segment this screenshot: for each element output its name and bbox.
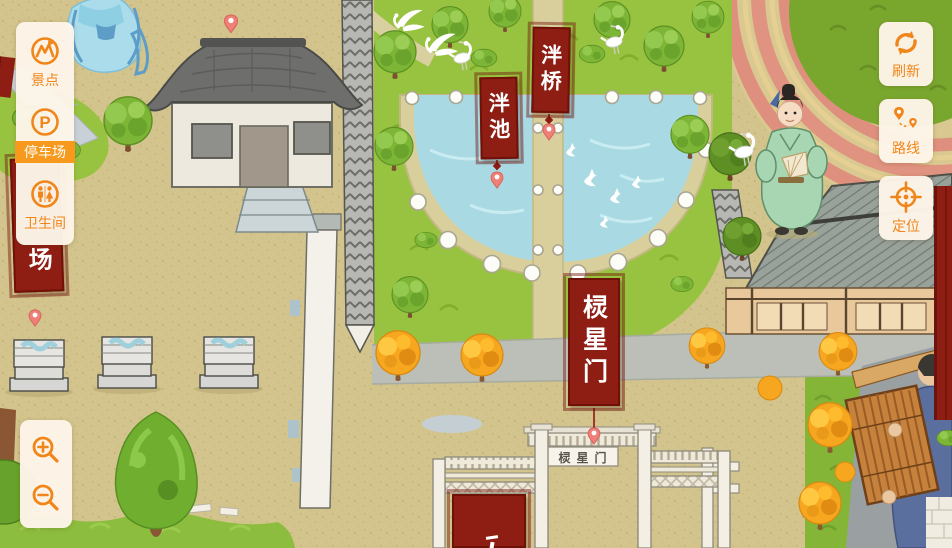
- banner-pan-bridge[interactable]: 泮桥: [531, 27, 570, 114]
- parking-icon: P: [29, 106, 61, 138]
- banner-bottom-partial[interactable]: [452, 494, 526, 548]
- scenic-spots-icon: [29, 35, 61, 67]
- scenic-spots-button[interactable]: 景点: [16, 35, 74, 90]
- restroom-button[interactable]: 卫生间: [16, 178, 74, 233]
- banner-pan-pond[interactable]: 泮池: [479, 77, 518, 160]
- gate-plaque-text: 棂星门: [546, 447, 619, 467]
- banner-partial-glyph: [486, 535, 498, 540]
- scenic-spots-label: 景点: [31, 70, 59, 90]
- locate-icon: [889, 180, 923, 214]
- route-icon: [889, 104, 923, 136]
- banner-lingxing-gate[interactable]: 棂星门: [568, 278, 620, 406]
- banner-partial-glyph: [489, 542, 494, 548]
- zoom-out-button[interactable]: [26, 476, 66, 520]
- refresh-button[interactable]: 刷新: [879, 22, 933, 86]
- locate-button[interactable]: 定位: [879, 176, 933, 240]
- stone-monuments: [5, 337, 263, 397]
- locate-label: 定位: [892, 216, 920, 236]
- scenic-map-screen: 泮池 泮桥 棂星门 场 棂星门 景点 P 停车场: [0, 0, 952, 548]
- refresh-icon: [889, 27, 923, 59]
- restroom-icon: [29, 178, 61, 210]
- banner-right-edge: [934, 186, 952, 420]
- parking-label: 停车场: [15, 141, 75, 163]
- restroom-label: 卫生间: [24, 213, 66, 233]
- refresh-label: 刷新: [892, 61, 920, 81]
- zoom-controls: [20, 420, 72, 528]
- map-canvas[interactable]: [0, 0, 952, 548]
- left-control-panel: 景点 P 停车场 卫生间: [16, 22, 74, 245]
- zoom-out-icon: [30, 482, 62, 514]
- svg-text:P: P: [39, 113, 50, 132]
- zoom-in-icon: [30, 434, 62, 466]
- zoom-in-button[interactable]: [26, 428, 66, 472]
- parking-button[interactable]: P 停车场: [16, 106, 74, 163]
- route-button[interactable]: 路线: [879, 99, 933, 163]
- route-label: 路线: [892, 138, 920, 158]
